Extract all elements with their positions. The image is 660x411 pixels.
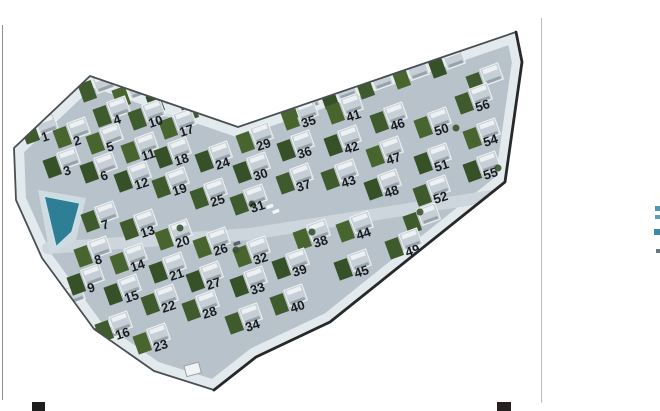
house-roof — [194, 90, 218, 112]
right-page-rule — [541, 18, 542, 403]
aerial-photo: 1234567891011121314151617181920212223242… — [14, 32, 522, 390]
crop-mark — [497, 402, 511, 411]
tree-icon — [177, 225, 184, 232]
garden — [47, 292, 67, 315]
clipped-text-fragment — [654, 229, 660, 235]
tree-icon — [417, 209, 424, 216]
clipped-text-fragment — [655, 215, 660, 219]
tree-icon — [233, 247, 240, 254]
roof-highlight — [128, 79, 144, 88]
roof-highlight — [299, 91, 315, 100]
left-page-rule — [2, 25, 3, 400]
tree-icon — [453, 125, 460, 132]
page: 1234567891011121314151617181920212223242… — [0, 0, 660, 411]
clipped-text-fragment — [655, 206, 660, 211]
crop-mark — [32, 402, 45, 411]
roof-shadow — [200, 103, 215, 111]
clipped-text-fragment — [656, 249, 660, 253]
roof-highlight — [196, 92, 212, 101]
tree-icon — [309, 229, 316, 236]
roof-highlight — [162, 85, 178, 94]
site-plan-map: 1234567891011121314151617181920212223242… — [0, 0, 660, 411]
